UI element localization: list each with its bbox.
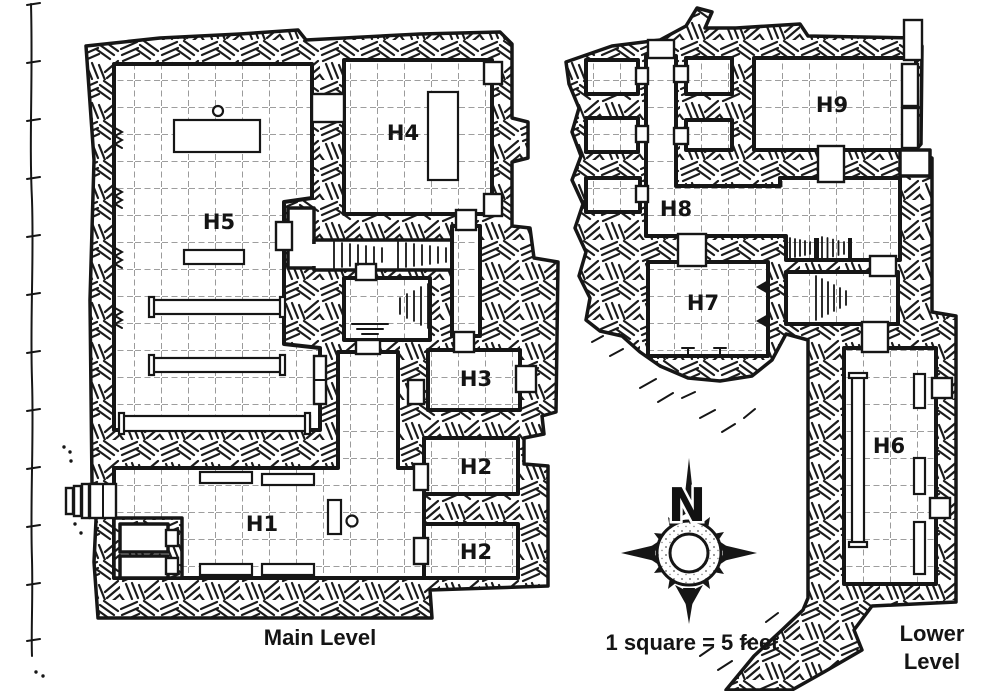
cell-1 <box>586 60 638 94</box>
room-label-h3: H3 <box>460 367 492 391</box>
room-label-h2-lower: H2 <box>460 540 492 564</box>
corridor-stairs-east <box>314 240 454 270</box>
lower-level: H9 H8 H7 H6 Lower Level <box>566 8 965 690</box>
room-label-h9: H9 <box>816 93 848 117</box>
scale-note: 1 square = 5 feet <box>605 630 779 655</box>
dungeon-map: H5 H4 H3 H2 H2 H1 Main Level <box>0 0 1000 691</box>
h4-altar <box>428 92 458 180</box>
corridor-east <box>452 226 480 336</box>
room-label-h4: H4 <box>387 121 419 145</box>
main-level: H5 H4 H3 H2 H2 H1 Main Level <box>62 30 558 650</box>
room-label-h2-upper: H2 <box>460 455 492 479</box>
room-label-h5: H5 <box>203 210 235 234</box>
page-edge-ruler <box>27 3 45 678</box>
compass-north-label: N <box>668 478 707 532</box>
table <box>174 120 260 152</box>
room-label-h8: H8 <box>660 197 692 221</box>
cell-3 <box>586 118 638 152</box>
cell-4 <box>686 120 732 150</box>
dungeon-map-page: H5 H4 H3 H2 H2 H1 Main Level <box>0 0 1000 691</box>
well <box>213 106 223 116</box>
room-label-h1: H1 <box>246 512 278 536</box>
cell-5 <box>586 178 640 212</box>
lower-level-caption-line1: Lower <box>900 621 965 646</box>
room-label-h6: H6 <box>873 434 905 458</box>
compass-rose-icon: N <box>621 458 757 624</box>
podium <box>328 500 341 534</box>
alcove-2 <box>120 556 168 578</box>
lower-stair-room <box>786 272 898 324</box>
stair-room <box>344 278 430 340</box>
room-label-h7: H7 <box>687 291 719 315</box>
cell-2 <box>686 58 732 94</box>
lower-level-caption-line2: Level <box>904 649 960 674</box>
alcove-1 <box>120 524 168 552</box>
east-passage-stub <box>900 150 930 176</box>
main-level-caption: Main Level <box>264 625 376 650</box>
